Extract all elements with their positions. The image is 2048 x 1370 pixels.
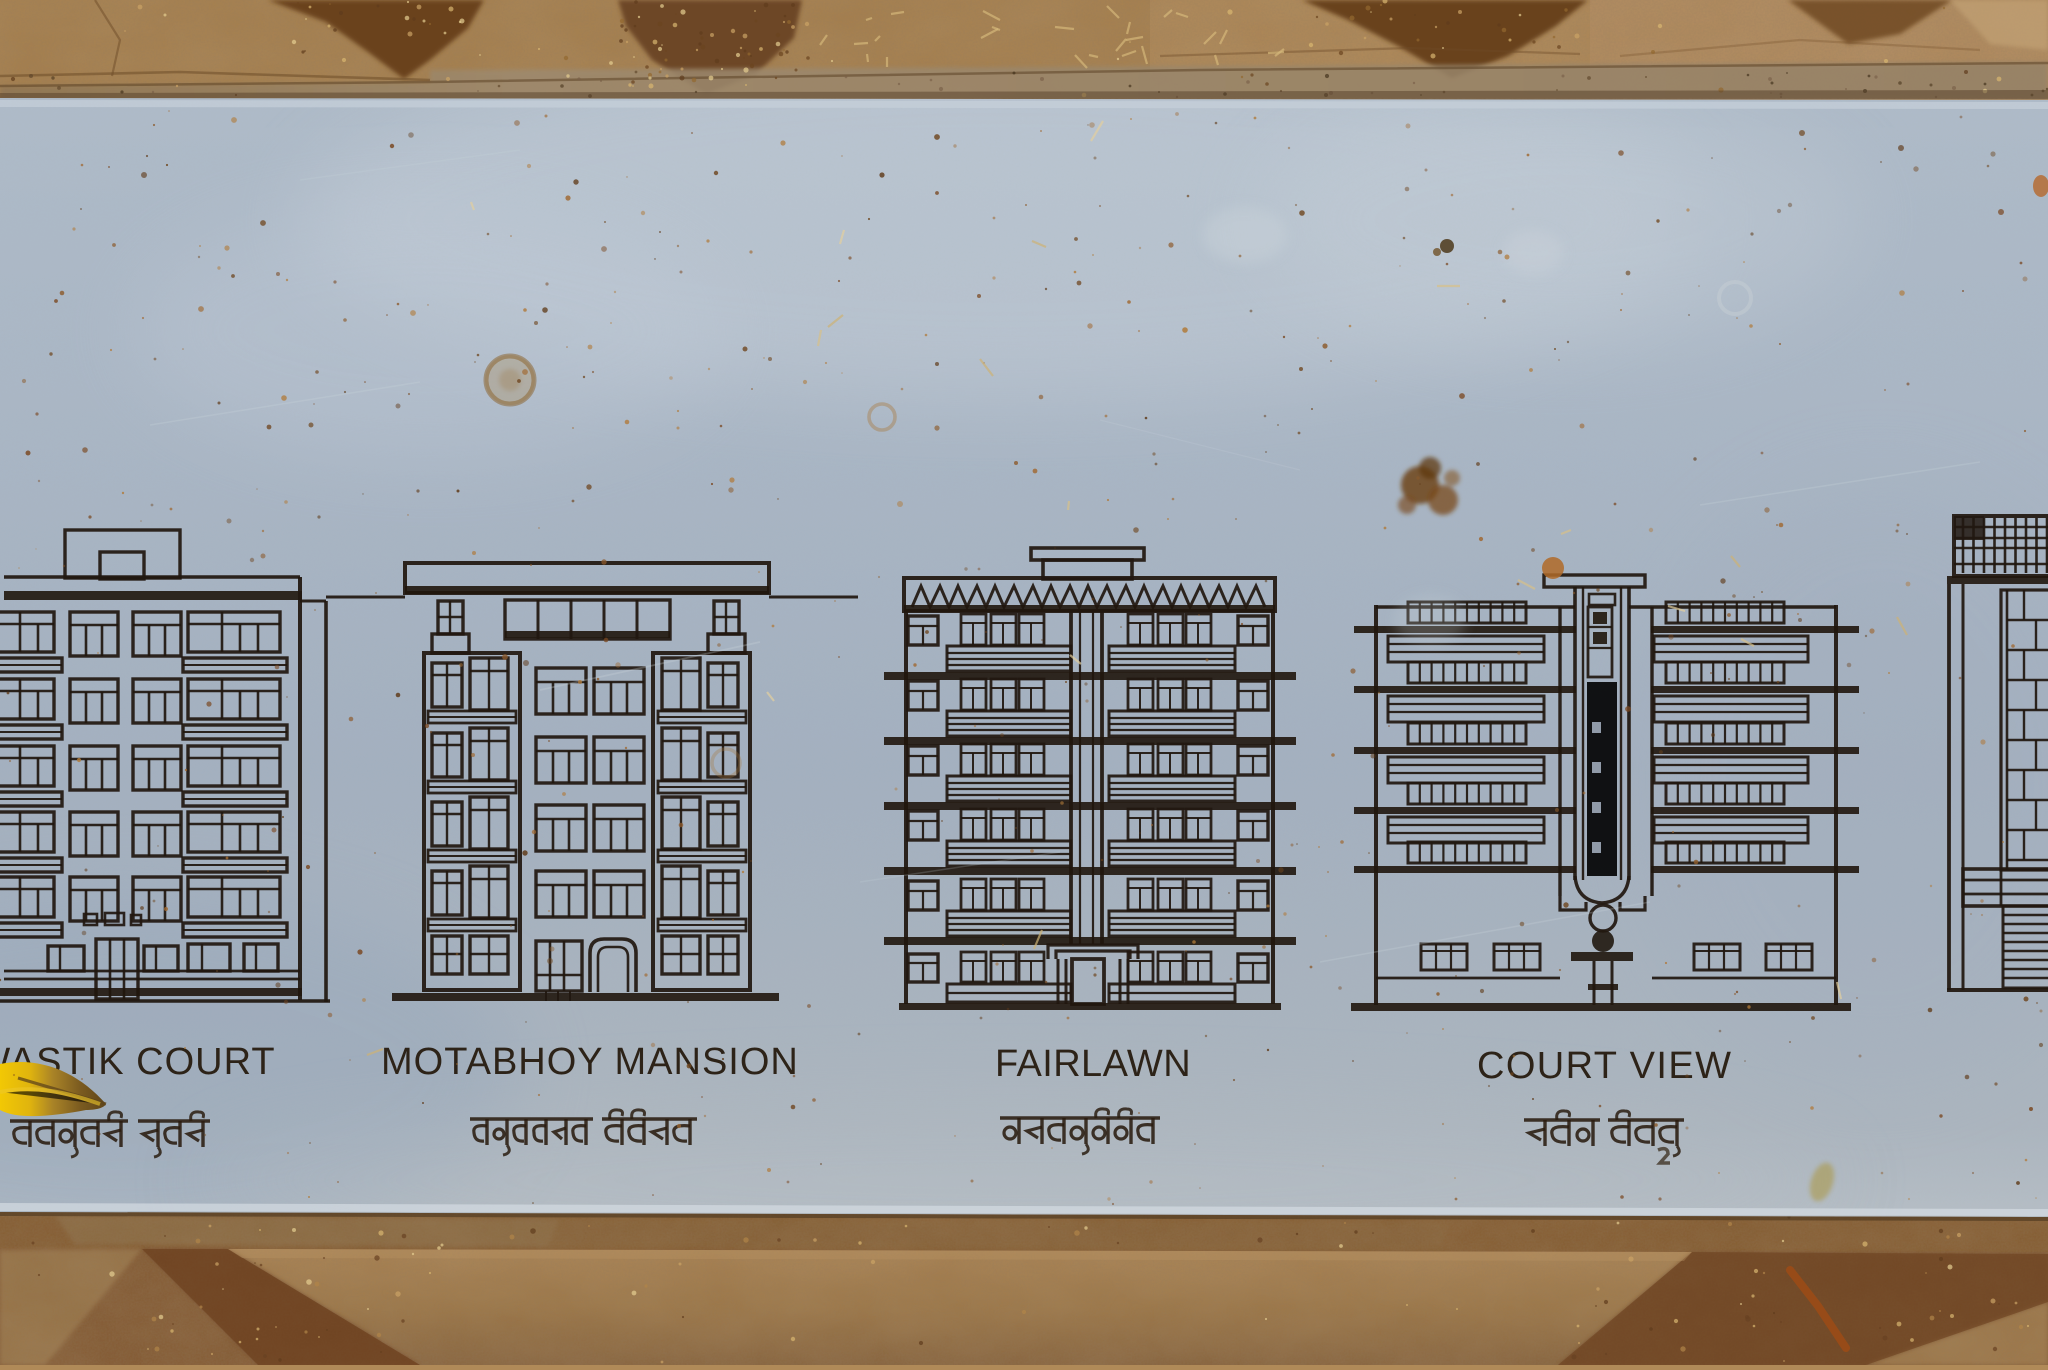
svg-text:COURT VIEW: COURT VIEW: [1477, 1045, 1732, 1087]
svg-text:FAIRLAWN: FAIRLAWN: [995, 1043, 1191, 1085]
svg-text:MOTABHOY MANSION: MOTABHOY MANSION: [381, 1041, 799, 1083]
